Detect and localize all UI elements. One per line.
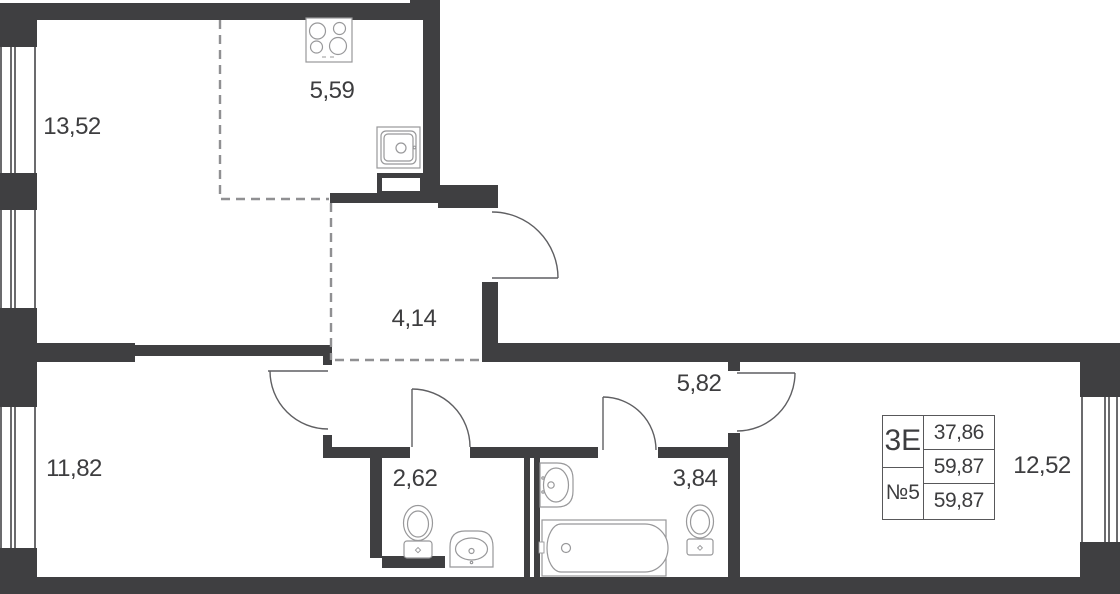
room-label-wc: 2,62 — [393, 465, 438, 493]
room-label-bedroom1: 11,82 — [46, 455, 102, 483]
room-label-hallway: 4,14 — [392, 305, 437, 333]
area-value-total: 59,87 — [924, 450, 994, 484]
apartment-info-table: 3Е №5 37,86 59,87 59,87 — [882, 415, 995, 520]
bathroom-sink-icon — [540, 463, 573, 507]
floor-plan: 13,52 5,59 4,14 11,82 2,62 3,84 5,82 12,… — [0, 0, 1120, 594]
bathroom-toilet-icon — [687, 505, 714, 555]
wc-sink-icon — [450, 531, 493, 567]
apartment-type: 3Е — [883, 416, 923, 468]
bathtub-icon — [539, 520, 668, 576]
area-value-living: 37,86 — [924, 416, 994, 450]
hallway-zone-dashed-line — [331, 203, 482, 360]
room-label-corridor: 5,82 — [677, 370, 722, 398]
bedroom1-door-arc — [268, 371, 328, 429]
room-label-bedroom2: 12,52 — [1013, 452, 1071, 480]
area-value-total-2: 59,87 — [924, 484, 994, 518]
bathroom-door-arc — [603, 397, 656, 450]
entry-door-arc — [492, 212, 558, 278]
kitchen-sink-icon — [377, 127, 420, 168]
room-label-kitchen: 5,59 — [310, 77, 355, 105]
wc-toilet-icon — [404, 506, 433, 559]
stove-icon — [306, 18, 352, 62]
wc-door-arc — [412, 389, 470, 447]
bedroom2-door-arc — [737, 373, 795, 431]
apartment-number: №5 — [883, 468, 923, 520]
room-label-bathroom: 3,84 — [673, 465, 718, 493]
room-label-living: 13,52 — [43, 113, 101, 141]
